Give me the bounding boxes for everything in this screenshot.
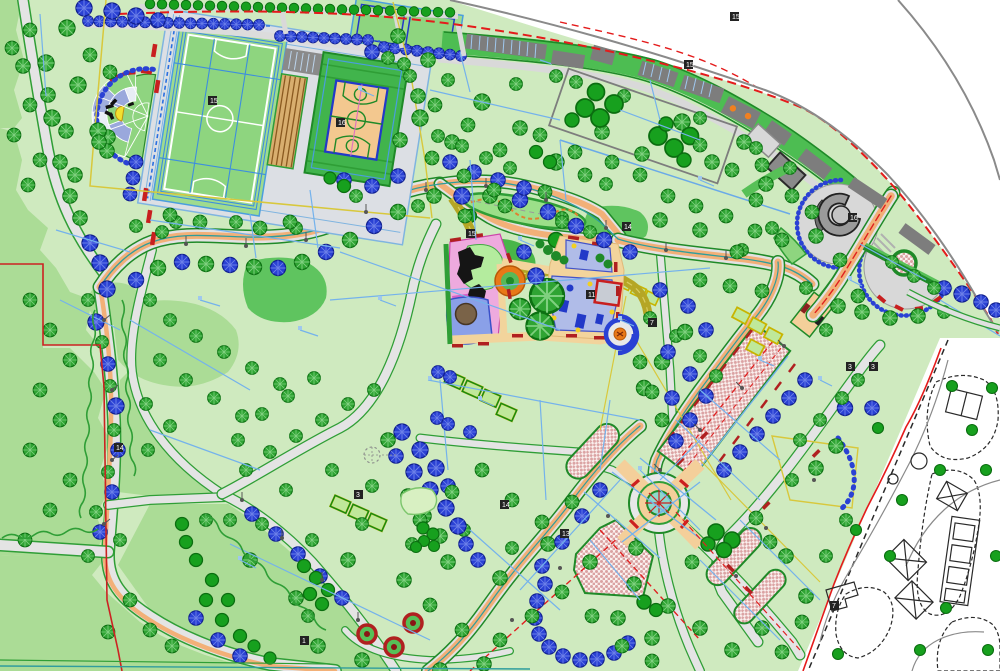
svg-text:14: 14 [624, 224, 632, 231]
svg-text:11: 11 [588, 292, 595, 299]
svg-text:15: 15 [686, 62, 694, 69]
svg-text:16: 16 [850, 215, 858, 222]
svg-text:1: 1 [302, 638, 306, 645]
svg-text:16: 16 [338, 120, 346, 127]
svg-text:15: 15 [210, 98, 218, 105]
svg-text:15: 15 [468, 231, 476, 238]
svg-text:15: 15 [732, 14, 740, 21]
svg-text:3: 3 [356, 492, 360, 499]
svg-text:3: 3 [848, 364, 852, 371]
svg-text:13: 13 [562, 531, 570, 538]
svg-text:14: 14 [502, 502, 510, 509]
svg-text:3: 3 [871, 364, 875, 371]
svg-text:7: 7 [832, 603, 836, 610]
svg-text:14: 14 [116, 445, 124, 452]
svg-text:7: 7 [650, 320, 654, 327]
